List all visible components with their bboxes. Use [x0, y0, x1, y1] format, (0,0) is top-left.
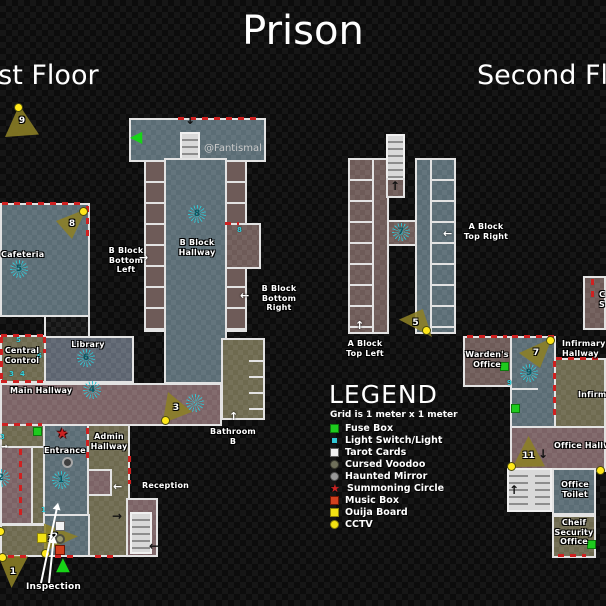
light-icon: 5: [10, 260, 28, 278]
stairs: [386, 134, 405, 180]
haunted-mirror-icon: [62, 457, 73, 468]
room-label-entrance: Entrance: [44, 446, 86, 456]
stairs-down-arrow-icon: ↓: [538, 448, 548, 460]
fuse-box-icon: [511, 404, 520, 413]
legend-item-summoning-circle: ★Summoning Circle: [330, 483, 444, 494]
legend-item-fuse-box: Fuse Box: [330, 423, 393, 434]
b-block-side-room: [225, 223, 261, 269]
pointer-up-icon: ↑: [229, 411, 238, 422]
music-box-icon: [330, 496, 339, 505]
wall: [512, 388, 538, 390]
room-label-b-block-bottom-right: B Block Bottom Right: [256, 284, 302, 313]
legend-item-music-box: Music Box: [330, 495, 399, 506]
tarot-cards-icon: [55, 521, 65, 531]
legend-item-haunted-mirror: Haunted Mirror: [330, 471, 427, 482]
room-label-reception: Reception: [142, 481, 189, 491]
cell-dividers: [430, 160, 454, 332]
pointer-right-icon: →: [1, 441, 8, 452]
b-block-hallway-room: [164, 158, 227, 384]
cctv-icon: [422, 326, 431, 335]
pointer-left-icon: ←: [113, 481, 122, 492]
cctv-icon: [79, 207, 88, 216]
first-floor-heading: First Floor: [0, 60, 99, 91]
room-label-chief-security-office: Cheif Security Office: [554, 518, 594, 547]
room-label-bathroom: Bathroom B: [208, 427, 258, 446]
bathroom-stalls: [249, 346, 263, 412]
light-icon: [186, 394, 204, 412]
haunted-mirror-icon: [330, 472, 339, 481]
room-label-b-block-hallway: B Block Hallway: [172, 238, 222, 257]
room-label-wardens-office: Warden's Office: [464, 350, 510, 369]
stairs-up-arrow-icon: ↑: [509, 484, 519, 496]
pointer-left-icon: ←: [443, 228, 452, 239]
light-icon: 9: [520, 364, 538, 382]
legend-title: LEGEND: [329, 380, 438, 409]
red-dash: [8, 555, 28, 558]
cctv-icon: [596, 466, 605, 475]
stair-divider: [528, 470, 535, 510]
light-icon: 8: [188, 205, 206, 223]
room-label-cutoff: C S: [596, 290, 606, 309]
summoning-circle-icon: ★: [56, 427, 69, 441]
light-switch-icon: 1: [41, 506, 46, 514]
fuse-box-icon: [33, 427, 42, 436]
pointer-up-icon: ↑: [355, 320, 364, 331]
cctv-icon: [546, 336, 555, 345]
light-switch-icon: [332, 438, 337, 443]
a-block-top-left-room: [348, 158, 389, 334]
room-label-office-toilet: Office Toilet: [556, 480, 594, 499]
room-label-admin-hallway: Admin Hallway: [88, 432, 130, 451]
stairs-down-arrow-icon: ↓: [185, 114, 195, 126]
light-switch-icon: 9: [507, 379, 512, 387]
ouija-board-icon: [330, 508, 339, 517]
red-dash: [1, 380, 43, 383]
red-dash: [1, 334, 43, 337]
light-switch-icon: 3: [9, 370, 14, 378]
room-label-infirmary-hallway: Infirmary Hallway: [562, 339, 606, 358]
light-icon: 7: [392, 223, 410, 241]
cell-dividers: [350, 160, 374, 332]
red-dash: [19, 449, 22, 519]
light-icon: 1: [52, 471, 70, 489]
legend-item-ouija-board: Ouija Board: [330, 507, 408, 518]
legend-item-cctv: CCTV: [330, 519, 373, 530]
stairs-up-arrow-icon: ↑: [390, 180, 400, 192]
red-dash: [467, 335, 507, 338]
stairs-right-arrow-icon: →: [112, 510, 122, 522]
red-dash: [558, 554, 586, 557]
green-arrow-left-icon: ◀: [130, 127, 142, 146]
room-label-cafeteria: Cafeteria: [1, 250, 44, 260]
legend-subtitle: Grid is 1 meter x 1 meter: [330, 410, 458, 420]
red-dash: [2, 423, 42, 426]
reception-room: [87, 469, 112, 496]
room-label-a-block-top-left: A Block Top Left: [342, 339, 388, 358]
a-block-top-right-room: [415, 158, 456, 334]
red-dash: [95, 555, 113, 558]
room-label-infirmary: Infirmary: [578, 390, 606, 400]
room-label-a-block-top-right: A Block Top Right: [460, 222, 512, 241]
legend-item-tarot-cards: Tarot Cards: [330, 447, 406, 458]
light-icon: 6: [77, 349, 95, 367]
red-dash: [2, 202, 82, 205]
legend-item-light-switch: Light Switch/Light: [330, 435, 442, 446]
pointer-left-icon: ←: [240, 290, 249, 301]
red-dash: [225, 222, 239, 225]
light-switch-icon: 5: [16, 336, 21, 344]
light-switch-icon: 8: [237, 226, 242, 234]
second-floor-heading: Second Floor: [477, 60, 606, 91]
room-label-central-control: Central Control: [0, 346, 44, 365]
red-dash: [591, 279, 594, 297]
room-label-inspection: Inspection: [26, 583, 81, 593]
red-dash: [553, 361, 556, 421]
start-point-icon: ▲: [56, 554, 70, 575]
cctv-icon: [14, 103, 23, 112]
fuse-box-icon: [330, 424, 339, 433]
stairs-left-arrow-icon: ←: [149, 540, 159, 552]
room-label-library: Library: [58, 340, 118, 350]
cctv-icon: [330, 520, 339, 529]
room-label-main-hallway: Main Hallway: [10, 386, 72, 396]
bathroom-room: [221, 338, 265, 420]
watermark: @Fantismal: [204, 143, 262, 154]
map-title: Prison: [0, 8, 606, 54]
legend-item-cursed-voodoo: Cursed Voodoo: [330, 459, 425, 470]
cctv-icon: [507, 462, 516, 471]
cctv-icon: [161, 416, 170, 425]
ouija-board-icon: [37, 533, 47, 543]
summoning-circle-icon: ★: [330, 484, 341, 493]
light-switch-icon: 4: [20, 370, 25, 378]
pointer-right-icon: →: [139, 252, 148, 263]
light-switch-icon: 3: [0, 433, 5, 441]
tarot-cards-icon: [330, 448, 339, 457]
light-icon: 4: [83, 381, 101, 399]
cursed-voodoo-icon: [330, 460, 339, 469]
room-label-office-hallway: Office Hallway: [554, 441, 606, 451]
prison-map: Prison First Floor Second Floor ◀ ↓ @Fan…: [0, 0, 606, 606]
red-dash: [128, 456, 131, 484]
